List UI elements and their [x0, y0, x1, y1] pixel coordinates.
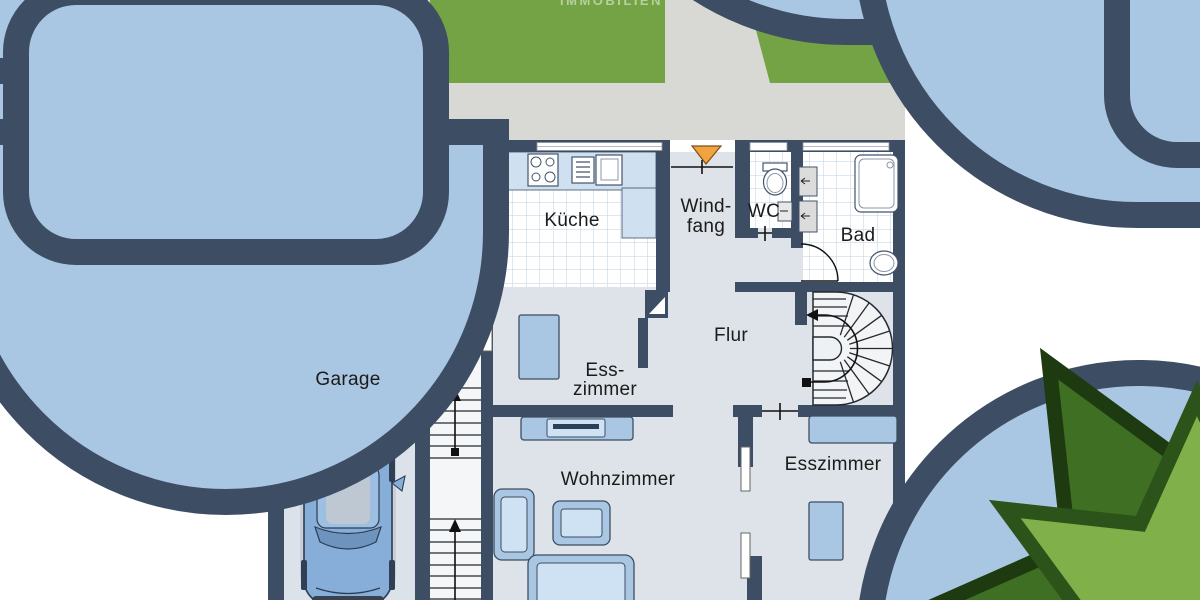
dining-table — [809, 502, 843, 560]
chair — [867, 0, 1200, 215]
armchair — [494, 489, 534, 560]
floor-plan-drawing: IMMOBILIEN — [0, 0, 1200, 600]
room-label-garage: Garage — [315, 369, 380, 391]
room-label-kueche: Küche — [544, 210, 599, 232]
room-label-windfang-2: fang — [687, 216, 725, 238]
room-label-bad: Bad — [841, 225, 876, 247]
chair — [0, 0, 496, 502]
bathtub-icon — [855, 155, 898, 212]
room-label-wc: WC — [748, 201, 780, 223]
dining-table — [519, 315, 559, 379]
chimney-icon — [645, 290, 668, 318]
floor-plan: IMMOBILIEN — [0, 0, 1200, 600]
stove-icon — [528, 154, 558, 186]
room-label-windfang-1: Wind- — [680, 196, 731, 218]
watermark: IMMOBILIEN — [560, 0, 663, 8]
room-label-wohnzimmer: Wohnzimmer — [561, 469, 676, 491]
sink-icon — [596, 155, 622, 185]
dishwasher-icon — [572, 157, 594, 183]
sofa — [528, 555, 634, 600]
sideboard — [809, 416, 897, 443]
coffee-table — [553, 501, 610, 545]
room-label-esszimmer-right: Esszimmer — [785, 454, 882, 476]
room-label-flur: Flur — [714, 325, 748, 347]
tv-screen — [553, 424, 599, 429]
room-label-esszimmer-left-2: zimmer — [573, 379, 637, 401]
grass-left — [430, 0, 665, 83]
